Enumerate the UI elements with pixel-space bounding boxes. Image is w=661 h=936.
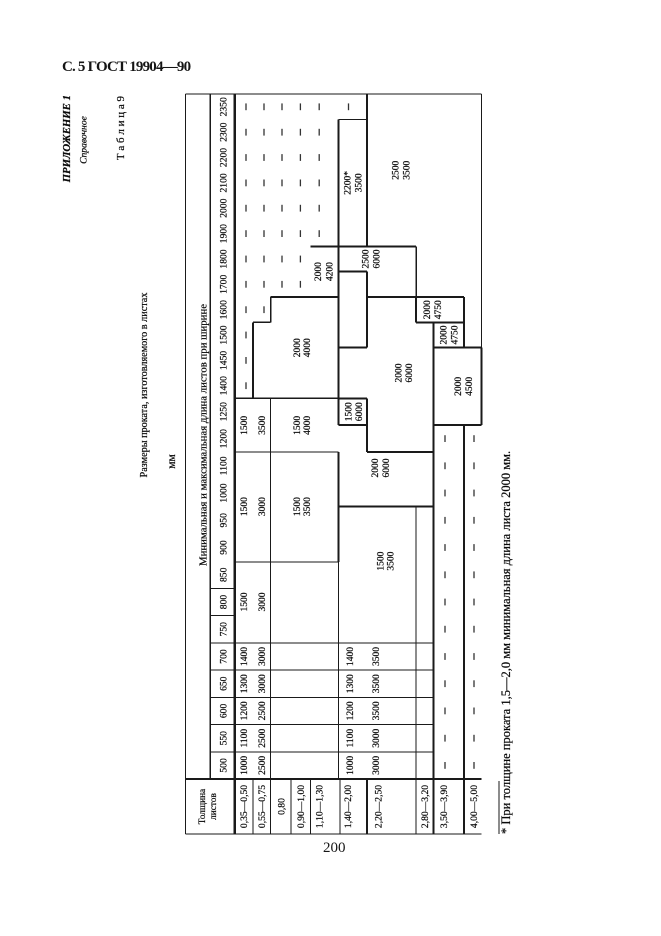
svg-text:1100: 1100 <box>346 729 356 748</box>
svg-text:4500: 4500 <box>465 377 475 396</box>
svg-text:1300: 1300 <box>240 674 250 693</box>
svg-text:1200: 1200 <box>346 701 356 720</box>
svg-text:2500: 2500 <box>258 701 268 720</box>
svg-text:2500: 2500 <box>258 756 268 775</box>
svg-text:Размеры проката, изготовляемог: Размеры проката, изготовляемого в листах <box>139 293 150 478</box>
svg-text:3000: 3000 <box>258 674 268 693</box>
svg-text:3500: 3500 <box>372 674 382 693</box>
svg-text:3500: 3500 <box>403 160 413 179</box>
svg-text:0,90—1,00: 0,90—1,00 <box>296 785 307 828</box>
svg-text:3000: 3000 <box>372 728 382 747</box>
svg-text:2000: 2000 <box>440 325 450 344</box>
svg-text:1000: 1000 <box>219 483 230 502</box>
svg-text:6000: 6000 <box>373 249 383 268</box>
svg-text:3,50—3,90: 3,50—3,90 <box>439 785 450 828</box>
svg-text:6000: 6000 <box>382 458 392 477</box>
svg-text:4000: 4000 <box>303 338 313 357</box>
svg-text:4000: 4000 <box>303 416 313 435</box>
svg-text:1200: 1200 <box>219 429 230 448</box>
svg-text:1600: 1600 <box>219 300 230 319</box>
svg-text:2350: 2350 <box>219 97 230 116</box>
svg-text:4750: 4750 <box>434 300 444 319</box>
svg-text:3000: 3000 <box>258 592 268 611</box>
svg-text:2100: 2100 <box>219 173 230 192</box>
svg-text:3500: 3500 <box>258 416 268 435</box>
svg-text:2500: 2500 <box>362 249 372 268</box>
svg-text:1900: 1900 <box>219 224 230 243</box>
svg-text:1700: 1700 <box>219 275 230 294</box>
svg-text:1500: 1500 <box>219 325 230 344</box>
svg-text:Справочное: Справочное <box>79 115 90 164</box>
svg-text:3500: 3500 <box>372 647 382 666</box>
svg-text:Минимальная и максимальная дли: Минимальная и максимальная длина листов … <box>198 304 210 566</box>
svg-text:2000: 2000 <box>454 377 464 396</box>
svg-text:1500: 1500 <box>240 497 250 516</box>
svg-text:2,80—3,20: 2,80—3,20 <box>420 785 431 828</box>
svg-text:мм: мм <box>166 454 178 469</box>
svg-text:3500: 3500 <box>303 497 313 516</box>
svg-text:0,55—0,75: 0,55—0,75 <box>257 785 268 828</box>
svg-text:1500: 1500 <box>240 592 250 611</box>
svg-text:3500: 3500 <box>387 551 397 570</box>
svg-text:550: 550 <box>219 731 230 746</box>
svg-text:1250: 1250 <box>219 402 230 421</box>
svg-text:1500: 1500 <box>240 416 250 435</box>
svg-text:1800: 1800 <box>219 249 230 268</box>
svg-text:1000: 1000 <box>240 756 250 775</box>
svg-text:1400: 1400 <box>346 647 356 666</box>
svg-text:500: 500 <box>219 758 230 773</box>
svg-text:1000: 1000 <box>346 756 356 775</box>
svg-text:1500: 1500 <box>293 497 303 516</box>
svg-text:0,80: 0,80 <box>276 798 287 815</box>
svg-text:1300: 1300 <box>346 674 356 693</box>
svg-text:3000: 3000 <box>372 756 382 775</box>
svg-text:3500: 3500 <box>355 173 365 192</box>
svg-text:1500: 1500 <box>377 551 387 570</box>
svg-text:3500: 3500 <box>372 701 382 720</box>
svg-text:2200: 2200 <box>219 148 230 167</box>
svg-text:Т а б л и ц а 9: Т а б л и ц а 9 <box>115 96 127 161</box>
svg-text:листов: листов <box>209 793 219 820</box>
svg-text:2500: 2500 <box>392 160 402 179</box>
svg-text:950: 950 <box>219 513 230 528</box>
svg-text:2500: 2500 <box>258 728 268 747</box>
svg-text:1450: 1450 <box>219 351 230 370</box>
svg-text:1100: 1100 <box>219 456 230 475</box>
svg-text:* При толщине проката 1,5—2,0: * При толщине проката 1,5—2,0 мм минимал… <box>499 451 513 834</box>
svg-text:3000: 3000 <box>258 497 268 516</box>
svg-text:2,20—2,50: 2,20—2,50 <box>374 785 385 828</box>
svg-text:1200: 1200 <box>240 701 250 720</box>
svg-text:2300: 2300 <box>219 122 230 141</box>
svg-text:2000: 2000 <box>371 458 381 477</box>
svg-text:4750: 4750 <box>451 325 461 344</box>
svg-text:2000: 2000 <box>395 363 405 382</box>
svg-text:Толщина: Толщина <box>198 789 208 824</box>
svg-text:0,35—0,50: 0,35—0,50 <box>239 785 250 828</box>
svg-text:1400: 1400 <box>240 647 250 666</box>
svg-text:1400: 1400 <box>219 376 230 395</box>
svg-text:900: 900 <box>219 540 230 555</box>
svg-text:750: 750 <box>219 622 230 637</box>
svg-text:650: 650 <box>219 676 230 691</box>
svg-text:1500: 1500 <box>345 402 355 421</box>
svg-text:6000: 6000 <box>405 363 415 382</box>
svg-text:1100: 1100 <box>240 729 250 748</box>
svg-text:6000: 6000 <box>355 402 365 421</box>
svg-text:2000: 2000 <box>219 198 230 217</box>
svg-text:2000: 2000 <box>423 300 433 319</box>
svg-text:4200: 4200 <box>326 262 336 281</box>
svg-text:ПРИЛОЖЕНИЕ 1: ПРИЛОЖЕНИЕ 1 <box>61 95 73 183</box>
svg-text:800: 800 <box>219 595 230 610</box>
svg-text:850: 850 <box>219 567 230 582</box>
svg-text:1,10—1,30: 1,10—1,30 <box>314 785 325 828</box>
svg-text:2000: 2000 <box>314 262 324 281</box>
svg-text:1500: 1500 <box>293 416 303 435</box>
svg-text:4,00—5,00: 4,00—5,00 <box>469 785 480 828</box>
svg-text:1,40—2,00: 1,40—2,00 <box>343 785 354 828</box>
svg-text:600: 600 <box>219 704 230 719</box>
svg-text:700: 700 <box>219 649 230 664</box>
svg-text:2200*: 2200* <box>344 171 354 195</box>
svg-text:2000: 2000 <box>293 338 303 357</box>
svg-text:3000: 3000 <box>258 647 268 666</box>
